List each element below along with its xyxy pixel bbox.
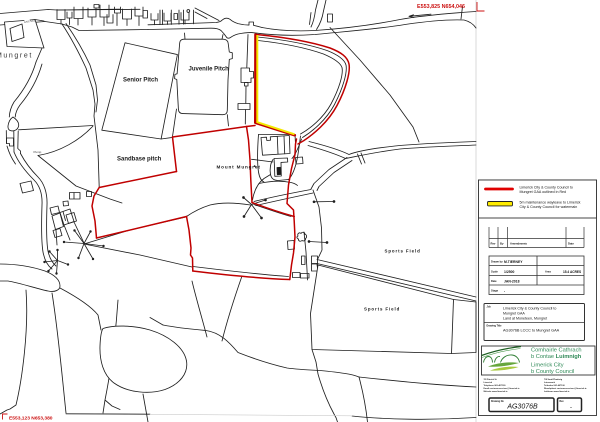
svg-text:By: By: [500, 242, 504, 246]
svg-text:Pump: Pump: [34, 150, 42, 154]
svg-text:7/8 Patrick St: 7/8 Patrick St: [484, 378, 497, 381]
svg-text:Limerick: Limerick: [484, 381, 493, 384]
svg-text:Riomhphost customerservices@li: Riomhphost customerservices@limerick.ie: [544, 387, 587, 390]
svg-text:Juvenile Pitch: Juvenile Pitch: [189, 67, 230, 73]
svg-text:Teileafon 061-407100: Teileafon 061-407100: [544, 384, 565, 387]
svg-text:E553,123 N653,380: E553,123 N653,380: [9, 416, 53, 422]
svg-text:1/2500: 1/2500: [504, 270, 514, 274]
svg-text:Email customerservices@limeric: Email customerservices@limerick.ie: [484, 387, 521, 390]
svg-text:JAN-2018: JAN-2018: [504, 280, 520, 284]
svg-text:Sandbase pitch: Sandbase pitch: [117, 157, 162, 163]
svg-text:Land at Moneteen, Mungret: Land at Moneteen, Mungret: [503, 317, 547, 321]
svg-text:Rev: Rev: [560, 401, 565, 403]
svg-text:Website www.limerick.ie: Website www.limerick.ie: [484, 390, 509, 393]
svg-text:Mungret GAA outlined in Red: Mungret GAA outlined in Red: [520, 190, 567, 194]
svg-text:Date: Date: [568, 242, 574, 246]
svg-text:Sports Field: Sports Field: [364, 307, 400, 312]
svg-text:Mungret GAA: Mungret GAA: [503, 312, 525, 316]
svg-text:Limerick City & County Council: Limerick City & County Council to: [503, 307, 556, 311]
svg-text:7/8 Sraid Phadraig: 7/8 Sraid Phadraig: [544, 378, 563, 381]
svg-text:b County Council: b County Council: [531, 369, 574, 375]
svg-text:Drawn by: Drawn by: [491, 260, 503, 264]
svg-text:Limerick City & County Council: Limerick City & County Council to: [520, 186, 573, 190]
svg-text:b Contae Luimnigh: b Contae Luimnigh: [531, 354, 582, 360]
svg-text:-: -: [570, 405, 572, 411]
svg-text:AG3076B LCCC to Mungret GAA: AG3076B LCCC to Mungret GAA: [503, 329, 560, 333]
svg-text:Drawing No: Drawing No: [491, 401, 504, 403]
svg-text:Scale: Scale: [491, 270, 498, 274]
svg-text:M.TIERNEY: M.TIERNEY: [504, 260, 523, 264]
svg-text:E553,825 N654,046: E553,825 N654,046: [417, 4, 465, 10]
svg-text:Sports Field: Sports Field: [385, 249, 421, 254]
svg-text:Job: Job: [487, 306, 492, 309]
svg-text:Senior Pitch: Senior Pitch: [123, 78, 158, 84]
svg-text:Drawing Title: Drawing Title: [487, 325, 503, 328]
svg-text:Mungret: Mungret: [0, 53, 33, 60]
svg-text:15.4 ACRES: 15.4 ACRES: [563, 270, 581, 274]
svg-text:City & County Council for wate: City & County Council for watermain: [520, 205, 578, 209]
svg-text:Rev: Rev: [491, 242, 496, 246]
svg-text:Telephone 061-407100: Telephone 061-407100: [484, 384, 507, 387]
svg-text:Comhairle Cathrach: Comhairle Cathrach: [531, 348, 582, 354]
svg-text:Amendments: Amendments: [510, 242, 528, 246]
svg-text:Date: Date: [491, 279, 497, 283]
svg-text:Stage: Stage: [491, 289, 499, 293]
svg-text:Mount Mungret: Mount Mungret: [217, 165, 261, 170]
svg-text:AG3076B: AG3076B: [506, 404, 538, 411]
svg-text:Luimneach: Luimneach: [544, 382, 556, 384]
svg-text:5m maintenance wayleave to Lim: 5m maintenance wayleave to Limerick: [520, 201, 581, 205]
svg-text:Laithrean www.limerick.ie: Laithrean www.limerick.ie: [544, 390, 570, 393]
svg-text:-: -: [504, 289, 505, 293]
svg-text:Area: Area: [545, 270, 551, 274]
svg-text:Limerick City: Limerick City: [531, 363, 564, 369]
